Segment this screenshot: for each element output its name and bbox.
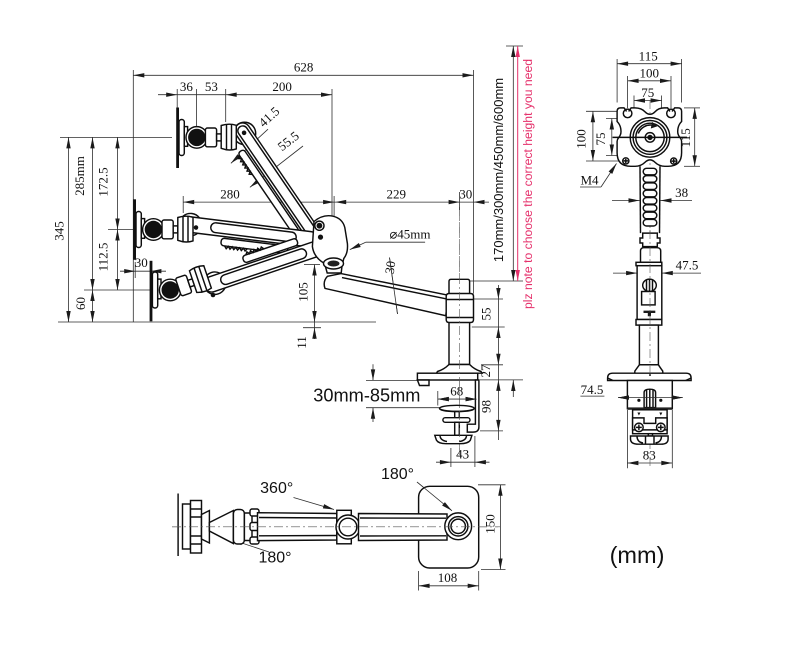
svg-text:⌀45mm: ⌀45mm [389,227,430,242]
svg-text:105: 105 [296,282,311,302]
svg-text:30: 30 [459,186,472,201]
svg-text:30: 30 [135,255,148,270]
svg-text:345: 345 [52,221,67,241]
svg-text:100: 100 [640,65,660,80]
svg-text:150: 150 [482,514,497,534]
svg-text:628: 628 [294,60,314,75]
svg-text:285mm: 285mm [72,156,87,196]
svg-text:180°: 180° [381,466,414,483]
svg-text:75: 75 [641,85,654,100]
svg-text:108: 108 [438,570,458,585]
svg-text:M4: M4 [580,173,599,188]
svg-text:98: 98 [479,400,494,413]
svg-text:100: 100 [574,129,589,149]
svg-text:112.5: 112.5 [96,243,111,272]
svg-text:68: 68 [450,383,463,398]
svg-text:plz note to choose the correct: plz note to choose the correct height yo… [521,59,535,309]
svg-text:115: 115 [639,48,658,63]
svg-text:36: 36 [180,79,194,94]
svg-text:11: 11 [294,336,309,349]
svg-text:280: 280 [220,186,240,201]
svg-text:83: 83 [643,447,656,462]
svg-text:55: 55 [479,308,494,321]
svg-text:53: 53 [205,79,218,94]
svg-text:74.5: 74.5 [581,382,604,397]
svg-text:75: 75 [593,133,608,146]
svg-text:47.5: 47.5 [676,258,699,273]
svg-text:38: 38 [675,185,688,200]
svg-text:360°: 360° [260,480,293,497]
svg-text:229: 229 [387,186,407,201]
svg-text:(mm): (mm) [610,542,665,568]
svg-text:170mm/300mm/450mm/600mm: 170mm/300mm/450mm/600mm [491,78,506,262]
svg-text:172.5: 172.5 [96,167,111,196]
svg-text:200: 200 [272,79,292,94]
svg-text:60: 60 [73,297,88,310]
svg-text:30mm-85mm: 30mm-85mm [313,386,420,406]
svg-text:43: 43 [456,447,469,462]
svg-text:180°: 180° [258,550,291,567]
